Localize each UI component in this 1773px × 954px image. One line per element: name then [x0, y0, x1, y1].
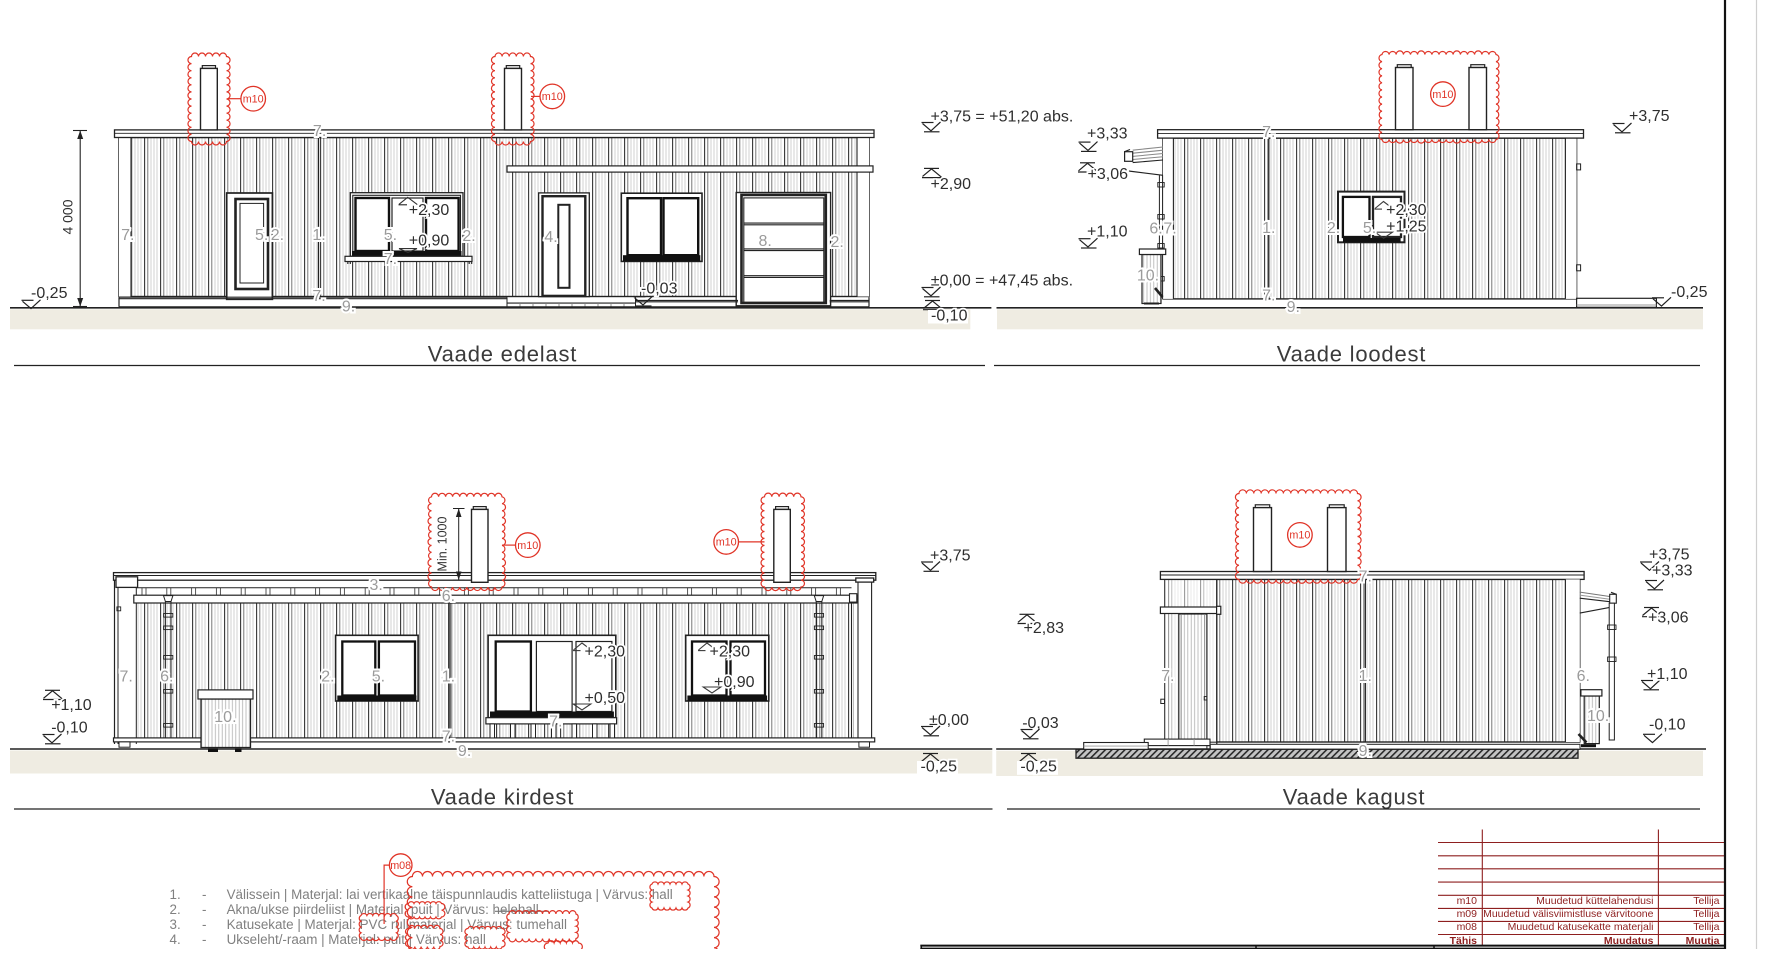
- svg-text:9.: 9.: [1359, 743, 1372, 760]
- svg-text:-0,25: -0,25: [921, 759, 958, 776]
- svg-text:1.: 1.: [442, 669, 455, 686]
- svg-text:5.: 5.: [1363, 220, 1376, 237]
- svg-text:+3,06: +3,06: [1088, 166, 1129, 183]
- svg-text:1.: 1.: [1262, 220, 1275, 237]
- svg-text:7.: 7.: [1262, 124, 1275, 141]
- svg-text:4.: 4.: [170, 932, 181, 947]
- svg-text:Muudetud välisviimistluse värv: Muudetud välisviimistluse värvitoone: [1483, 908, 1654, 920]
- svg-text:Tellija: Tellija: [1693, 921, 1719, 933]
- svg-text:7.: 7.: [1161, 668, 1174, 685]
- svg-text:Vaade kagust: Vaade kagust: [1283, 785, 1426, 810]
- svg-text:+1,10: +1,10: [51, 697, 92, 714]
- svg-text:+2,90: +2,90: [931, 176, 972, 193]
- svg-text:10.: 10.: [1587, 708, 1609, 725]
- svg-text:+3,75: +3,75: [1629, 108, 1670, 125]
- svg-text:Vaade loodest: Vaade loodest: [1277, 342, 1426, 367]
- svg-text:Tellija: Tellija: [1693, 908, 1719, 920]
- svg-text:-: -: [202, 932, 206, 947]
- svg-text:m10: m10: [1457, 895, 1478, 907]
- svg-text:Vaade edelast: Vaade edelast: [428, 342, 577, 367]
- svg-text:+0,90: +0,90: [409, 233, 450, 250]
- svg-text:7.: 7.: [1262, 288, 1275, 305]
- svg-text:m08: m08: [1457, 921, 1478, 933]
- svg-text:+2,30: +2,30: [585, 644, 626, 661]
- svg-text:2.: 2.: [271, 227, 284, 244]
- svg-text:7.: 7.: [120, 669, 133, 686]
- svg-text:2.: 2.: [170, 902, 181, 917]
- svg-text:+2,30: +2,30: [1386, 202, 1427, 219]
- svg-text:-: -: [202, 917, 206, 932]
- svg-text:m10: m10: [1432, 89, 1453, 101]
- svg-text:5.: 5.: [255, 227, 268, 244]
- svg-text:7.: 7.: [121, 227, 134, 244]
- svg-text:+3,06: +3,06: [1648, 610, 1689, 627]
- svg-text:6.: 6.: [160, 669, 173, 686]
- svg-text:7.: 7.: [549, 714, 562, 731]
- svg-text:Muudetud katusekatte materjali: Muudetud katusekatte materjali: [1508, 921, 1654, 933]
- svg-text:+0,90: +0,90: [714, 674, 755, 691]
- svg-text:10.: 10.: [1137, 268, 1159, 285]
- svg-text:-: -: [202, 902, 206, 917]
- svg-text:-0,10: -0,10: [931, 308, 968, 325]
- svg-text:2.: 2.: [1327, 220, 1340, 237]
- svg-text:6.: 6.: [1577, 668, 1590, 685]
- svg-text:Ukseleht/-raam | Materjal: pui: Ukseleht/-raam | Materjal: puit | Värvus…: [227, 932, 486, 947]
- svg-text:+3,75: +3,75: [1649, 547, 1690, 564]
- svg-text:7.: 7.: [313, 123, 326, 140]
- svg-text:Välissein | Materjal: lai vert: Välissein | Materjal: lai vertikaalne tä…: [227, 887, 673, 902]
- svg-text:m10: m10: [243, 93, 264, 105]
- svg-text:+1,10: +1,10: [1087, 224, 1128, 241]
- svg-text:1.: 1.: [1359, 668, 1372, 685]
- svg-text:9.: 9.: [1287, 299, 1300, 316]
- svg-text:5.: 5.: [384, 227, 397, 244]
- svg-text:2.: 2.: [462, 228, 475, 245]
- svg-text:10.: 10.: [214, 709, 236, 726]
- svg-text:-0,10: -0,10: [51, 720, 88, 737]
- svg-text:m08: m08: [390, 860, 411, 872]
- svg-text:±0,00 = +47,45 abs.: ±0,00 = +47,45 abs.: [931, 273, 1073, 290]
- svg-text:-0,03: -0,03: [641, 281, 678, 298]
- svg-text:±0,00: ±0,00: [929, 712, 969, 729]
- svg-text:2.: 2.: [831, 234, 844, 251]
- svg-text:6.: 6.: [1149, 221, 1162, 238]
- svg-text:9.: 9.: [342, 299, 355, 316]
- svg-text:2.: 2.: [321, 669, 334, 686]
- svg-text:7.: 7.: [384, 251, 397, 268]
- svg-text:-0,10: -0,10: [1649, 717, 1686, 734]
- svg-text:+3,75 = +51,20 abs.: +3,75 = +51,20 abs.: [931, 109, 1074, 126]
- svg-text:-0,25: -0,25: [1020, 759, 1057, 776]
- svg-text:Akna/ukse piirdeliist | Materj: Akna/ukse piirdeliist | Materjal: puit |…: [227, 902, 539, 917]
- svg-text:m10: m10: [542, 91, 563, 103]
- svg-text:7.: 7.: [1359, 569, 1372, 586]
- svg-text:7.: 7.: [312, 288, 325, 305]
- svg-text:Tellija: Tellija: [1693, 895, 1719, 907]
- svg-text:5.: 5.: [372, 669, 385, 686]
- svg-text:+2,30: +2,30: [409, 202, 450, 219]
- svg-text:Vaade kirdest: Vaade kirdest: [431, 785, 574, 810]
- svg-text:6.: 6.: [442, 588, 455, 605]
- svg-text:4.: 4.: [544, 229, 557, 246]
- svg-text:+3,75: +3,75: [930, 548, 971, 565]
- svg-text:m10: m10: [716, 537, 737, 549]
- svg-text:m10: m10: [517, 540, 538, 552]
- svg-text:-: -: [202, 887, 206, 902]
- svg-text:Muudetud küttelahendusi: Muudetud küttelahendusi: [1536, 895, 1653, 907]
- svg-text:9.: 9.: [458, 743, 471, 760]
- svg-text:7.: 7.: [1163, 221, 1176, 238]
- svg-text:4 000: 4 000: [60, 199, 76, 234]
- svg-text:+3,33: +3,33: [1087, 125, 1128, 142]
- svg-text:1.: 1.: [312, 227, 325, 244]
- svg-text:m09: m09: [1457, 908, 1478, 920]
- svg-text:8.: 8.: [759, 233, 772, 250]
- svg-text:Katusekate | Materjal: PVC rul: Katusekate | Materjal: PVC rullmaterjal …: [227, 917, 567, 932]
- svg-text:1.: 1.: [170, 887, 181, 902]
- svg-text:m10: m10: [1289, 530, 1310, 542]
- svg-text:3.: 3.: [370, 577, 383, 594]
- svg-text:+2,30: +2,30: [710, 644, 751, 661]
- svg-text:Min. 1000: Min. 1000: [436, 517, 450, 572]
- svg-text:-0,25: -0,25: [1671, 284, 1708, 301]
- svg-text:+3,33: +3,33: [1652, 563, 1693, 580]
- svg-text:-0,25: -0,25: [31, 285, 68, 302]
- svg-text:7.: 7.: [442, 729, 455, 746]
- svg-text:3.: 3.: [170, 917, 181, 932]
- svg-text:+2,83: +2,83: [1024, 620, 1065, 637]
- svg-text:+1,10: +1,10: [1647, 666, 1688, 683]
